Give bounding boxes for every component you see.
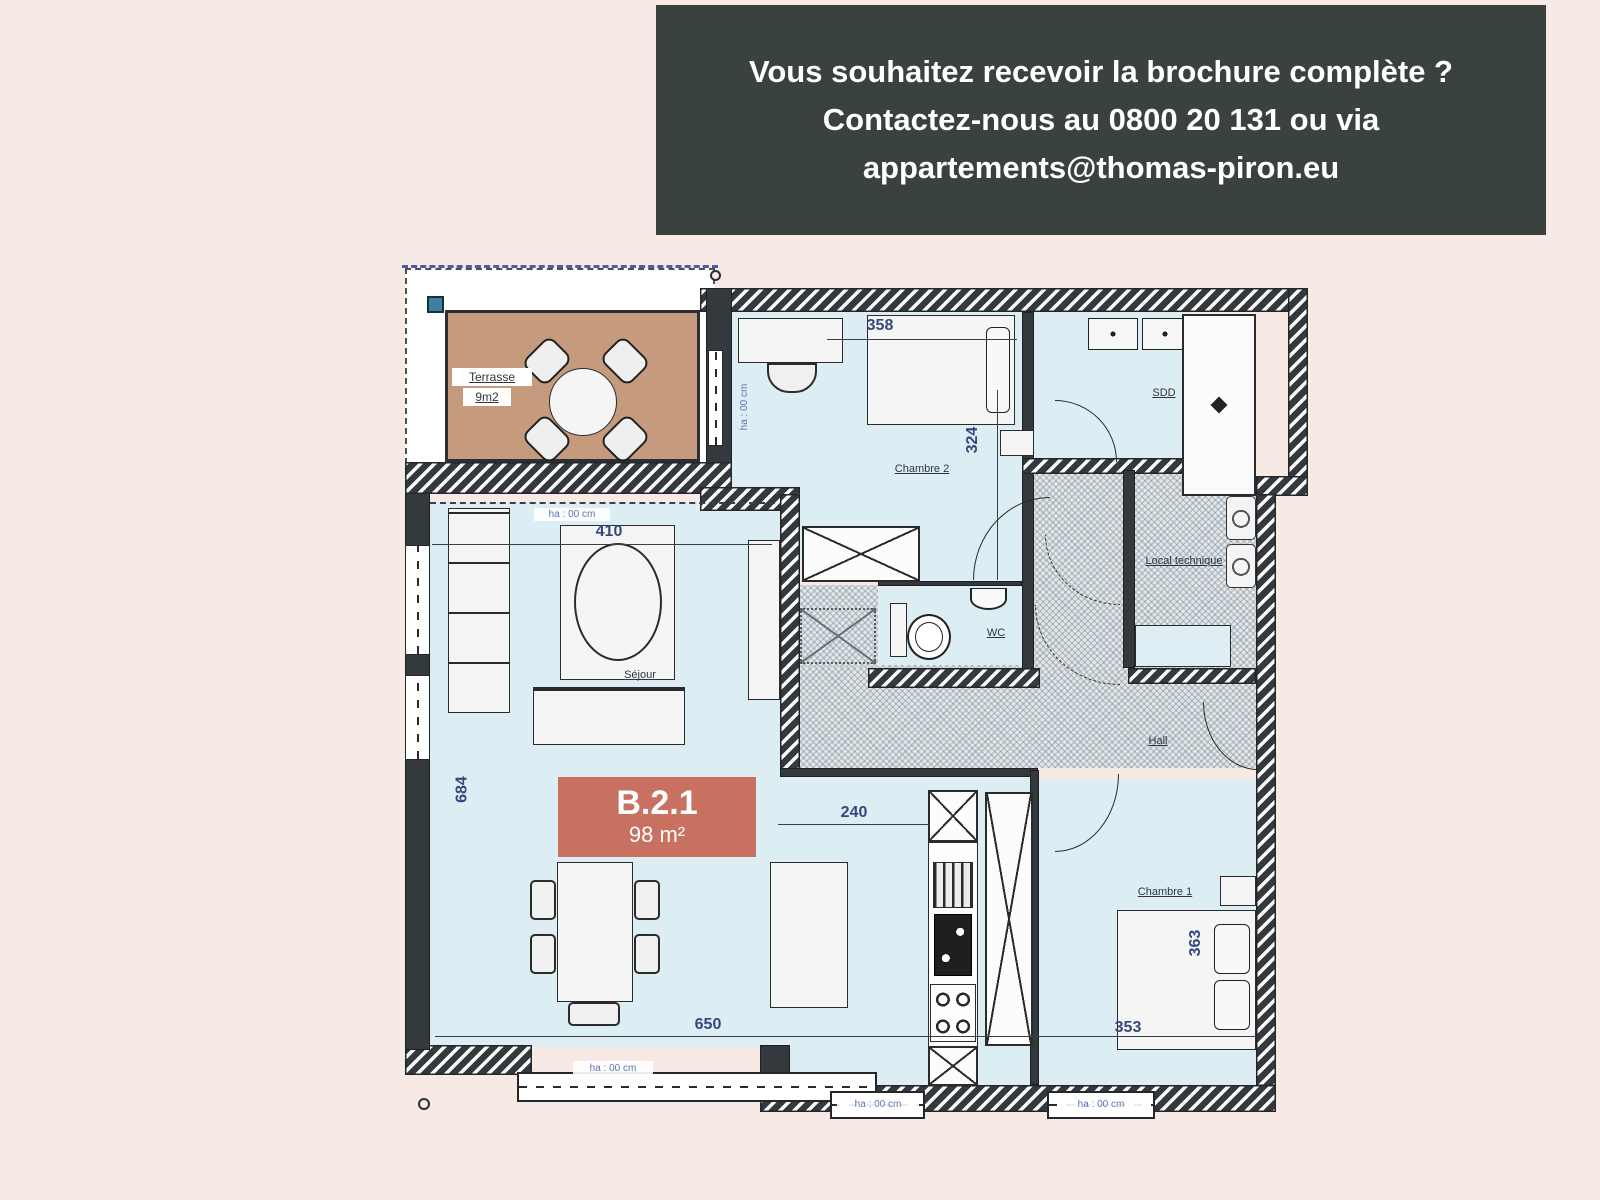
hall-label: Hall (1138, 734, 1178, 748)
terrace-boundary-line (402, 265, 718, 268)
sejour-side-window (405, 675, 430, 760)
dim-line-410 (432, 544, 772, 545)
right-wall-step (1256, 476, 1308, 496)
washing-machine (1226, 496, 1256, 540)
local-technique-bottom-wall (1128, 668, 1256, 684)
toilet-bowl (907, 614, 951, 660)
dim-line-358 (827, 339, 1017, 340)
top-wall (700, 288, 1307, 312)
dim-410: 410 (583, 523, 635, 541)
sdd-label: SDD (1146, 386, 1182, 400)
nightstand-chambre1 (1220, 876, 1256, 906)
dining-chair (634, 880, 660, 920)
dim-line-324 (997, 390, 998, 580)
local-technique-inner-wall (1123, 470, 1135, 668)
sejour-right-wall (780, 494, 800, 770)
dim-353: 353 (1100, 1019, 1156, 1036)
kitchen-island (770, 862, 848, 1008)
terrace-bottom-wall (405, 462, 732, 494)
unit-label: B.2.1 98 m² (558, 777, 756, 857)
kitchen-tall-cabinet (985, 792, 1033, 1046)
armchair (748, 540, 780, 700)
sejour-bottom-window (517, 1072, 877, 1102)
wardrobe-chambre2 (802, 526, 920, 582)
hall-bottom-wall (780, 768, 1038, 777)
pillow (1214, 924, 1250, 974)
right-wall-upper (1288, 288, 1308, 496)
dining-table (557, 862, 633, 1002)
wc-label: WC (980, 626, 1012, 639)
sejour-top-sliding-line (430, 502, 775, 504)
survey-point-bottom (418, 1098, 430, 1110)
kitchen-cabinet-top (928, 790, 978, 842)
kitchen-drainer (933, 862, 973, 908)
dining-chair (568, 1002, 620, 1026)
unit-area: 98 m² (629, 822, 685, 848)
terrasse-label: Terrasse (452, 368, 532, 386)
sofa-left (448, 508, 510, 713)
hall-closet (800, 608, 876, 664)
terrace-corner-marker (427, 296, 444, 313)
window-annotation-bottom-left: ha : 00 cm (573, 1061, 653, 1075)
chambre1-label: Chambre 1 (1125, 885, 1205, 899)
middle-vertical-wall (1022, 312, 1034, 672)
banner-line-1: Vous souhaitez recevoir la brochure comp… (749, 55, 1453, 89)
technical-unit (1135, 625, 1231, 667)
sofa-bottom (533, 687, 685, 745)
dining-chair (634, 934, 660, 974)
floor-plan: B.2.1 98 m² Terrasse 9m2 Chambre 2 SDD W… (400, 240, 1310, 1130)
kitchen-cabinet-bottom (928, 1046, 978, 1086)
toilet-tank (890, 603, 907, 657)
pillow (1214, 980, 1250, 1030)
stove (930, 984, 976, 1042)
nightstand-chambre2 (1000, 430, 1034, 456)
desk (738, 318, 843, 363)
chambre2-terrace-window (708, 350, 723, 446)
dim-650: 650 (682, 1016, 734, 1034)
wc-sink (970, 588, 1007, 610)
unit-id: B.2.1 (616, 786, 697, 820)
dim-240: 240 (828, 804, 880, 822)
banner-line-2: Contactez-nous au 0800 20 131 ou via (823, 103, 1380, 137)
kitchen-sink (934, 914, 972, 976)
survey-point-top (710, 270, 721, 281)
dining-chair (530, 880, 556, 920)
dim-line-240 (778, 824, 930, 825)
terrace-table (549, 368, 617, 436)
oval-table (574, 543, 662, 661)
dining-chair (530, 934, 556, 974)
chambre2-label: Chambre 2 (886, 462, 958, 476)
contact-banner: Vous souhaitez recevoir la brochure comp… (656, 5, 1546, 235)
right-wall-lower (1256, 494, 1276, 1086)
local-technique-label: Local technique (1133, 554, 1235, 568)
washbasin (1088, 318, 1138, 350)
dim-684: 684 (454, 767, 471, 813)
dim-324: 324 (965, 418, 981, 462)
wc-bottom-wall (868, 668, 1040, 688)
sejour-side-window (405, 545, 430, 655)
sejour-label: Séjour (610, 668, 670, 682)
window-annotation-sejour-top: ha : 00 cm (534, 508, 610, 521)
dim-363: 363 (1188, 921, 1204, 965)
window-annotation-bottom-mid: ha : 00 cm (837, 1097, 919, 1111)
window-annotation-bottom-right: ha : 00 cm (1060, 1097, 1142, 1111)
dim-358: 358 (850, 316, 910, 336)
terrasse-area-label: 9m2 (463, 388, 511, 406)
window-annotation-terrace-side: ha : 00 cm (738, 372, 750, 442)
banner-line-3: appartements@thomas-piron.eu (863, 151, 1339, 185)
